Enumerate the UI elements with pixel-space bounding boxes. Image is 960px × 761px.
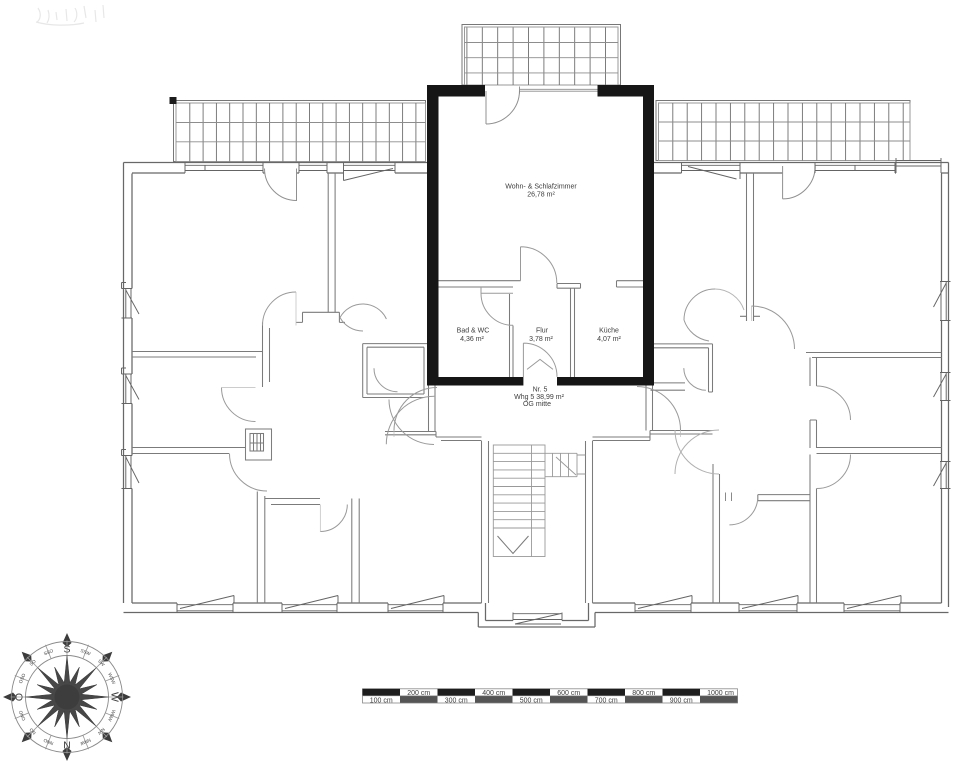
svg-text:600 cm: 600 cm — [557, 690, 580, 697]
svg-text:4,36 m²: 4,36 m² — [460, 336, 484, 343]
svg-text:Flur: Flur — [536, 328, 549, 335]
svg-text:N: N — [63, 739, 71, 751]
svg-text:Bad & WC: Bad & WC — [457, 328, 490, 335]
svg-text:100 cm: 100 cm — [370, 697, 393, 704]
svg-text:OG mitte: OG mitte — [523, 401, 551, 408]
svg-text:26,78 m²: 26,78 m² — [527, 192, 555, 199]
svg-text:4,07 m²: 4,07 m² — [597, 336, 621, 343]
svg-text:300 cm: 300 cm — [445, 697, 468, 704]
svg-text:O: O — [14, 693, 26, 701]
svg-text:WNW: WNW — [107, 709, 116, 723]
svg-text:S: S — [63, 644, 70, 656]
svg-text:200 cm: 200 cm — [407, 690, 430, 697]
svg-text:Nr. 5: Nr. 5 — [533, 387, 548, 394]
svg-text:OSO: OSO — [18, 672, 27, 684]
svg-text:900 cm: 900 cm — [670, 697, 693, 704]
svg-text:W: W — [109, 692, 121, 702]
svg-text:SSW: SSW — [80, 648, 92, 657]
svg-text:3,78 m²: 3,78 m² — [529, 336, 553, 343]
svg-text:SSO: SSO — [43, 648, 54, 656]
svg-text:WSW: WSW — [107, 672, 116, 685]
svg-text:ONO: ONO — [18, 709, 27, 721]
svg-text:1000 cm: 1000 cm — [707, 690, 734, 697]
svg-text:Küche: Küche — [599, 328, 619, 335]
svg-text:700 cm: 700 cm — [595, 697, 618, 704]
svg-text:NNO: NNO — [42, 737, 54, 746]
svg-text:Whg 5 38,99 m²: Whg 5 38,99 m² — [514, 394, 564, 401]
svg-text:500 cm: 500 cm — [520, 697, 543, 704]
svg-text:400 cm: 400 cm — [482, 690, 505, 697]
svg-text:NNW: NNW — [79, 737, 92, 746]
svg-text:Wohn- & Schlafzimmer: Wohn- & Schlafzimmer — [505, 184, 577, 191]
svg-text:800 cm: 800 cm — [632, 690, 655, 697]
